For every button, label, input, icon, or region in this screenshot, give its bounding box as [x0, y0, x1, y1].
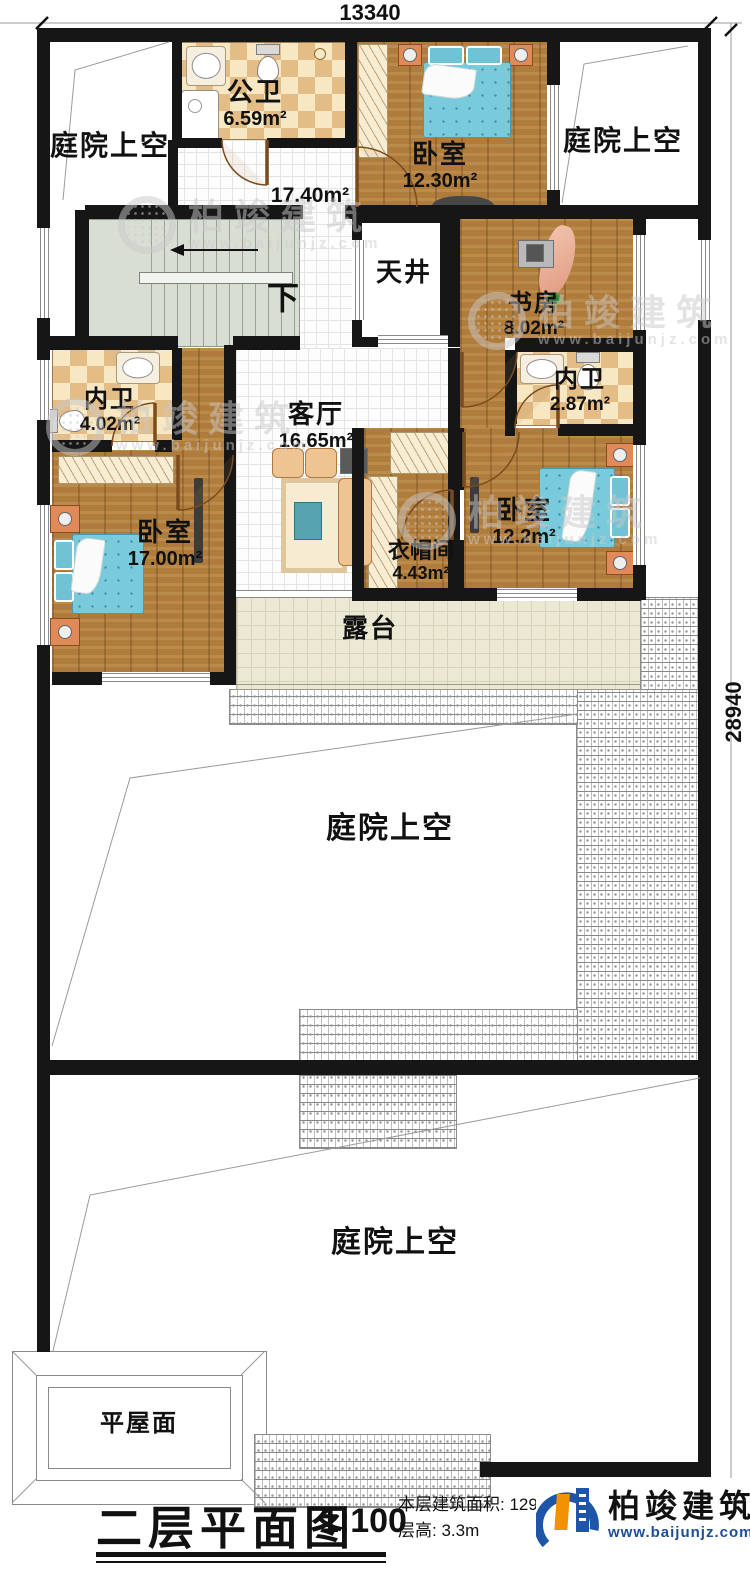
- nightstand: [509, 44, 533, 66]
- roof-tiles-band: [230, 690, 577, 724]
- nightstand: [50, 618, 80, 646]
- label-bath-left: 内卫 4.02m²: [55, 386, 165, 435]
- wall: [577, 588, 641, 601]
- title-underline: [96, 1552, 386, 1557]
- dimension-top: 13340: [300, 0, 440, 26]
- dimension-right: 28940: [721, 667, 745, 757]
- label-stairs-down: 下: [262, 280, 306, 317]
- wall: [37, 28, 711, 42]
- nightstand: [606, 551, 634, 575]
- drawing-title: 二层平面图: [96, 1492, 356, 1558]
- terrace-floor: [236, 596, 643, 690]
- label-bedroom-top: 卧室 12.30m²: [380, 140, 500, 193]
- label-bath-right: 内卫 2.87m²: [528, 366, 632, 415]
- title-underline: [96, 1561, 386, 1563]
- pendant-light-icon: [314, 48, 326, 60]
- wall: [448, 213, 460, 347]
- wall: [224, 345, 236, 685]
- wall: [267, 138, 357, 148]
- wall: [505, 424, 515, 436]
- wall: [633, 213, 646, 235]
- pillow: [428, 46, 464, 65]
- sink-icon: [116, 352, 160, 384]
- window: [497, 588, 577, 601]
- wall: [37, 336, 178, 350]
- wall: [480, 1462, 711, 1477]
- corridor-right-floor: [460, 338, 505, 428]
- nightstand: [606, 443, 634, 467]
- pillow: [466, 46, 502, 65]
- floor-plan: 13340 28940: [0, 0, 750, 1580]
- wall: [233, 336, 300, 350]
- wall: [37, 1060, 711, 1075]
- computer-icon: [526, 244, 544, 262]
- window: [37, 360, 50, 420]
- wall: [75, 210, 89, 348]
- window: [633, 445, 646, 565]
- wall: [352, 428, 364, 600]
- wall: [210, 672, 236, 685]
- brand-logo-icon: [536, 1478, 600, 1552]
- wall: [352, 588, 462, 601]
- nightstand: [50, 505, 80, 533]
- label-bedroom-right: 卧室 12.2m²: [468, 496, 580, 549]
- wall: [172, 348, 182, 440]
- floor-area-line: 本层建筑面积: 129.0: [398, 1492, 552, 1518]
- drawing-scale: 1:100: [320, 1502, 407, 1541]
- sliding-door: [236, 590, 352, 598]
- nightstand: [398, 44, 422, 66]
- brand-url: www.baijunjz.com: [608, 1524, 750, 1541]
- label-lightwell: 天井: [362, 258, 446, 288]
- window: [633, 235, 646, 330]
- brand-logo: 柏竣建筑 www.baijunjz.com: [536, 1478, 750, 1552]
- wall: [37, 28, 50, 1352]
- wall: [345, 42, 357, 145]
- floor-info: 本层建筑面积: 129.0 层高: 3.3m: [398, 1492, 552, 1545]
- label-terrace: 露台: [320, 614, 420, 644]
- label-courtyard-bottom: 庭院上空: [310, 1226, 480, 1261]
- pillow: [54, 540, 74, 570]
- wall: [505, 350, 517, 424]
- label-living: 客厅 16.65m²: [260, 400, 372, 453]
- roof-tiles-center-upper: [300, 1010, 577, 1062]
- wall: [155, 440, 172, 452]
- label-cloakroom: 衣帽间 4.43m²: [372, 538, 470, 584]
- window: [698, 240, 711, 320]
- wall: [345, 205, 703, 219]
- label-flat-roof: 平屋面: [88, 1410, 190, 1438]
- roof-tiles-right: [577, 690, 698, 1062]
- wall: [558, 424, 645, 436]
- wall: [462, 588, 497, 601]
- label-public-bath: 公卫 6.59m²: [200, 78, 310, 131]
- brand-name: 柏竣建筑: [608, 1489, 750, 1524]
- label-hall-area: 17.40m²: [250, 184, 370, 208]
- floor-height-line: 层高: 3.3m: [398, 1518, 552, 1544]
- wall: [452, 428, 464, 490]
- window: [37, 505, 50, 645]
- window: [102, 672, 210, 685]
- label-courtyard-top-left: 庭院上空: [40, 130, 180, 162]
- label-courtyard-top-right: 庭院上空: [552, 125, 694, 157]
- pillow: [610, 508, 630, 538]
- wall: [52, 440, 112, 452]
- terrace-rail: [236, 684, 641, 690]
- wall: [52, 672, 102, 685]
- coffee-table: [294, 502, 322, 540]
- pillow: [610, 476, 630, 506]
- label-bedroom-left: 卧室 17.00m²: [105, 518, 225, 571]
- wall: [515, 338, 633, 352]
- wardrobe: [58, 456, 174, 484]
- label-study: 书房 8.02m²: [478, 290, 590, 339]
- label-courtyard-mid: 庭院上空: [305, 812, 475, 847]
- wardrobe: [390, 432, 454, 474]
- window: [378, 335, 448, 347]
- window: [37, 228, 50, 318]
- roof-tiles-right-upper: [641, 598, 698, 690]
